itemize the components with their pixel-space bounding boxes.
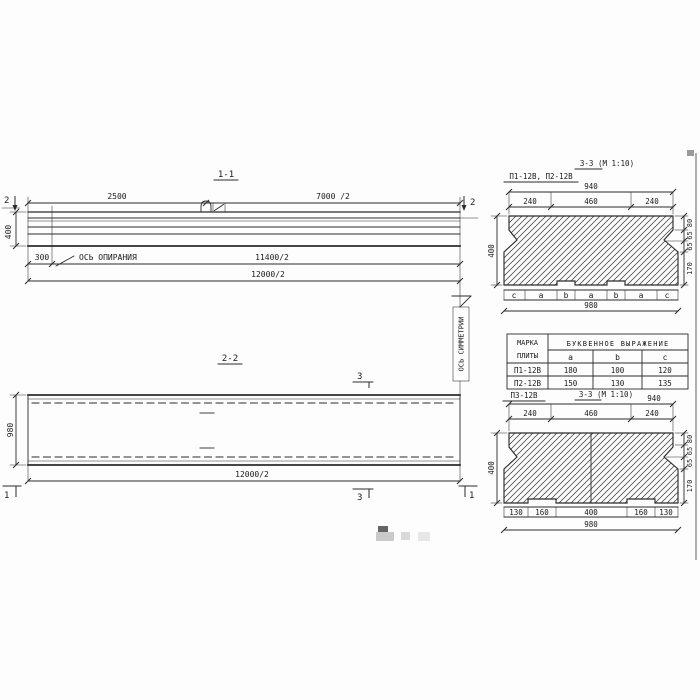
dim-12000-2: 12000/2: [235, 470, 269, 479]
section-1-1-view: 1-1 2500 7000 /2 2 2: [2, 170, 478, 284]
cut-mark-1-left: 1: [4, 491, 9, 501]
slab-plan: [28, 395, 460, 465]
dim-160-right: 160: [634, 508, 648, 517]
table-cell-b: 100: [611, 366, 625, 375]
dim-80: 80: [686, 435, 694, 443]
plate-mark-label: П3-12В: [510, 391, 538, 400]
scan-artifacts: [376, 526, 430, 541]
scan-smudge: [376, 532, 394, 541]
section-3-3-bottom-view: П3-12В 3-3 (М 1:10) 940 240 460 240 400: [487, 390, 694, 533]
section-2-2-title: 2-2: [222, 354, 238, 364]
table-header-plity: ПЛИТЫ: [517, 352, 538, 360]
symmetry-axis-label: ОСЬ СИММЕТРИИ: [458, 317, 466, 372]
letter-b2: b: [614, 291, 619, 300]
dim-12000-2: 12000/2: [251, 270, 285, 279]
cut-arrowhead-right: [462, 205, 467, 211]
dim-240-right: 240: [645, 197, 659, 206]
letter-a2: a: [589, 291, 594, 300]
letter-c2: c: [665, 291, 670, 300]
dim-400-vert: 400: [487, 461, 496, 475]
cut-mark-3-bottom: 3: [357, 493, 362, 503]
cut-mark-1-right: 1: [469, 491, 474, 501]
section-3-3-bottom-title: 3-3 (М 1:10): [579, 390, 633, 399]
dim-940: 940: [584, 182, 598, 191]
cross-section-hatched: [504, 216, 678, 285]
letter-a1: a: [539, 291, 544, 300]
section-2-2-view: 2-2 3 980 12000/2: [3, 354, 477, 503]
scan-smudge: [418, 532, 430, 541]
table-cell-c: 120: [658, 366, 672, 375]
symmetry-flag-diagonal: [460, 296, 471, 307]
dim-65b: 65: [686, 242, 694, 250]
dim-940: 940: [647, 394, 661, 403]
section-3-3-top-view: 3-3 (М 1:10) П1-12В, П2-12В 940 240 460 …: [487, 159, 694, 314]
table-cell-a: 180: [564, 366, 578, 375]
letter-dim-row: c a b a b a c: [504, 290, 678, 300]
letter-c1: c: [512, 291, 517, 300]
support-axis-label: ОСЬ ОПИРАНИЯ: [79, 253, 137, 262]
dim-240-left: 240: [523, 409, 537, 418]
plate-marks-label: П1-12В, П2-12В: [509, 172, 573, 181]
dim-65a: 65: [686, 447, 694, 455]
dim-460: 460: [584, 409, 598, 418]
table-cell-b: 130: [611, 379, 625, 388]
dim-980: 980: [584, 520, 598, 529]
section-3-3-top-title: 3-3 (М 1:10): [580, 159, 634, 168]
cut-mark-3-top: 3: [357, 372, 362, 382]
dim-300: 300: [35, 253, 50, 262]
table-header-marka: МАРКА: [517, 339, 539, 347]
border-corner-mark: [687, 150, 694, 156]
symmetry-axis: ОСЬ СИММЕТРИИ: [452, 281, 471, 395]
dim-240-right: 240: [645, 409, 659, 418]
scan-smudge: [378, 526, 388, 532]
dim-130-right: 130: [659, 508, 673, 517]
table-cell-mark: П2-12В: [514, 379, 542, 388]
dim-160-left: 160: [535, 508, 549, 517]
letter-a3: a: [639, 291, 644, 300]
cut-mark-2-right: 2: [470, 198, 475, 208]
dim-400-vert: 400: [4, 225, 13, 240]
table-cell-mark: П1-12В: [514, 366, 542, 375]
dim-80: 80: [686, 219, 694, 227]
dim-980: 980: [584, 301, 598, 310]
plate-dimension-table: МАРКА ПЛИТЫ БУКВЕННОЕ ВЫРАЖЕНИЕ a b c П1…: [507, 334, 688, 389]
technical-drawing: 1-1 2500 7000 /2 2 2: [0, 0, 700, 700]
dim-400-vert: 400: [487, 244, 496, 258]
dim-65a: 65: [686, 231, 694, 239]
dim-170: 170: [686, 480, 694, 493]
dim-240-left: 240: [523, 197, 537, 206]
dim-65b: 65: [686, 459, 694, 467]
dim-2500: 2500: [107, 192, 126, 201]
table-subheader-b: b: [615, 353, 620, 362]
dim-980-vert: 980: [6, 423, 15, 438]
slab-elevation: [28, 212, 460, 246]
table-cell-a: 150: [564, 379, 578, 388]
dim-7000-2: 7000 /2: [316, 192, 350, 201]
table-subheader-a: a: [568, 353, 573, 362]
dim-400-bottom: 400: [584, 508, 598, 517]
cut-mark-2-left: 2: [4, 196, 9, 206]
scan-smudge: [401, 532, 410, 540]
lifting-loop-detail-mark: [215, 205, 224, 211]
dim-170: 170: [686, 262, 694, 275]
dim-11400-2: 11400/2: [255, 253, 289, 262]
table-cell-c: 135: [658, 379, 672, 388]
drawing-sheet: 1-1 2500 7000 /2 2 2: [0, 0, 700, 700]
bottom-dim-row: 130 160 400 160 130: [504, 507, 678, 517]
table-subheader-c: c: [663, 353, 668, 362]
letter-b1: b: [564, 291, 569, 300]
dim-460: 460: [584, 197, 598, 206]
section-1-1-title: 1-1: [218, 170, 234, 180]
dim-130-left: 130: [509, 508, 523, 517]
leader-line: [56, 256, 74, 266]
table-header-letter-expression: БУКВЕННОЕ ВЫРАЖЕНИЕ: [567, 340, 670, 348]
